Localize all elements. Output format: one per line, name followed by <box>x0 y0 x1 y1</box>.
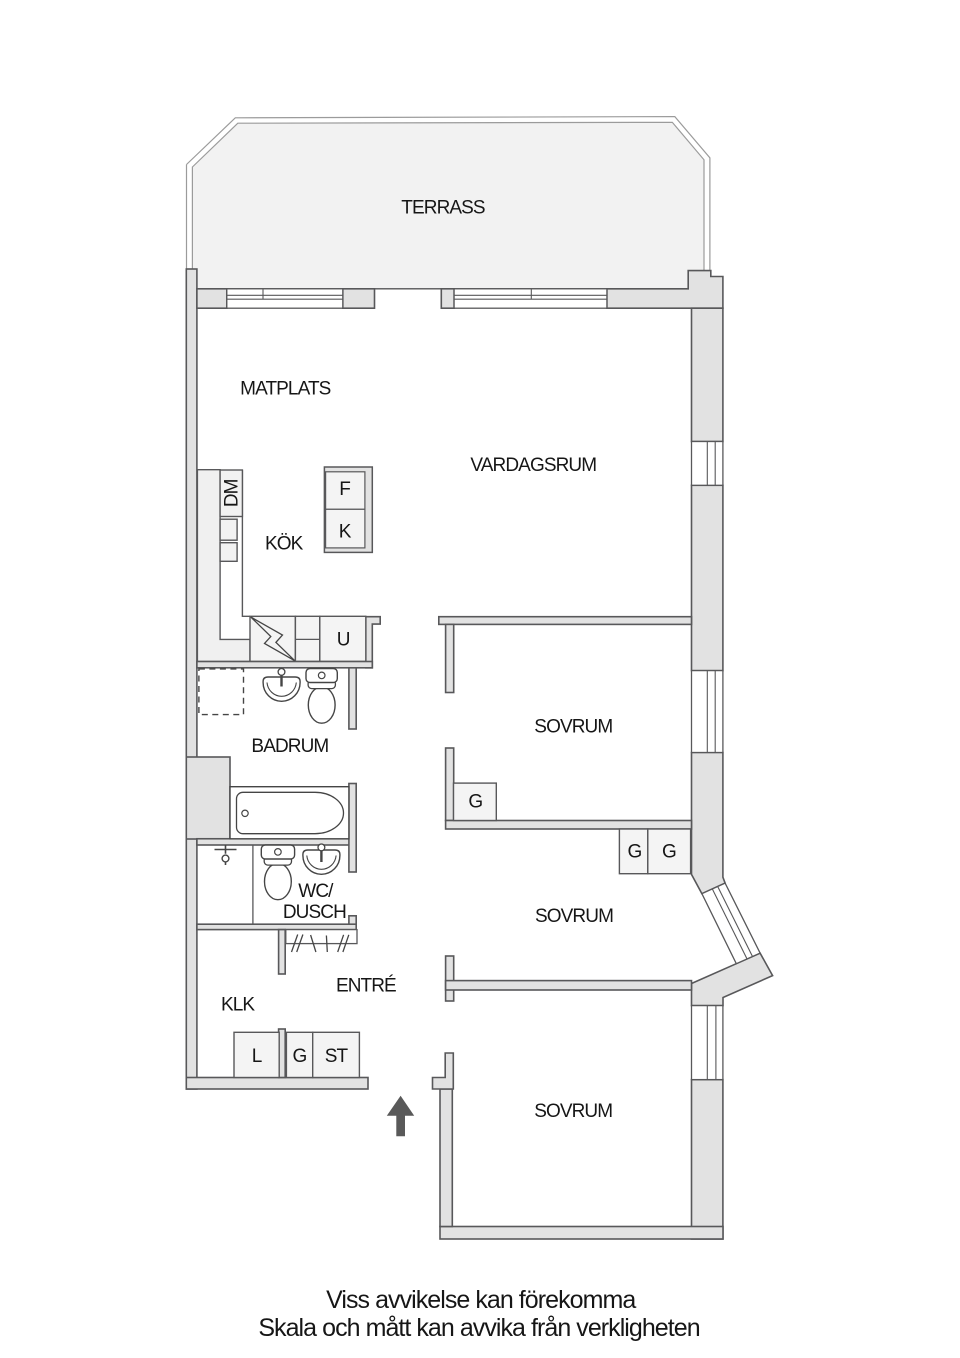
svg-text:G: G <box>468 792 482 813</box>
svg-text:ST: ST <box>325 1046 349 1067</box>
svg-text:MATPLATS: MATPLATS <box>240 379 331 400</box>
svg-text:SOVRUM: SOVRUM <box>534 717 612 738</box>
svg-text:Viss avvikelse kan förekomma: Viss avvikelse kan förekomma <box>326 1286 636 1314</box>
svg-text:G: G <box>662 842 676 863</box>
svg-text:SOVRUM: SOVRUM <box>534 1101 612 1122</box>
svg-text:L: L <box>252 1046 262 1067</box>
svg-text:G: G <box>293 1046 307 1067</box>
svg-text:DM: DM <box>222 479 243 507</box>
svg-text:DUSCH: DUSCH <box>283 902 346 923</box>
svg-text:F: F <box>339 479 350 500</box>
svg-text:KÖK: KÖK <box>265 534 304 555</box>
svg-text:U: U <box>337 629 350 650</box>
svg-text:TERRASS: TERRASS <box>401 197 485 218</box>
svg-text:ENTRÉ: ENTRÉ <box>336 976 396 997</box>
svg-text:SOVRUM: SOVRUM <box>535 906 613 927</box>
svg-text:BADRUM: BADRUM <box>251 736 328 757</box>
svg-text:VARDAGSRUM: VARDAGSRUM <box>470 455 596 476</box>
svg-text:KLK: KLK <box>221 994 255 1015</box>
svg-text:G: G <box>628 842 642 863</box>
svg-text:Skala och mått kan avvika från: Skala och mått kan avvika från verklighe… <box>258 1314 699 1342</box>
svg-text:K: K <box>339 522 352 543</box>
svg-text:WC/: WC/ <box>298 881 334 902</box>
